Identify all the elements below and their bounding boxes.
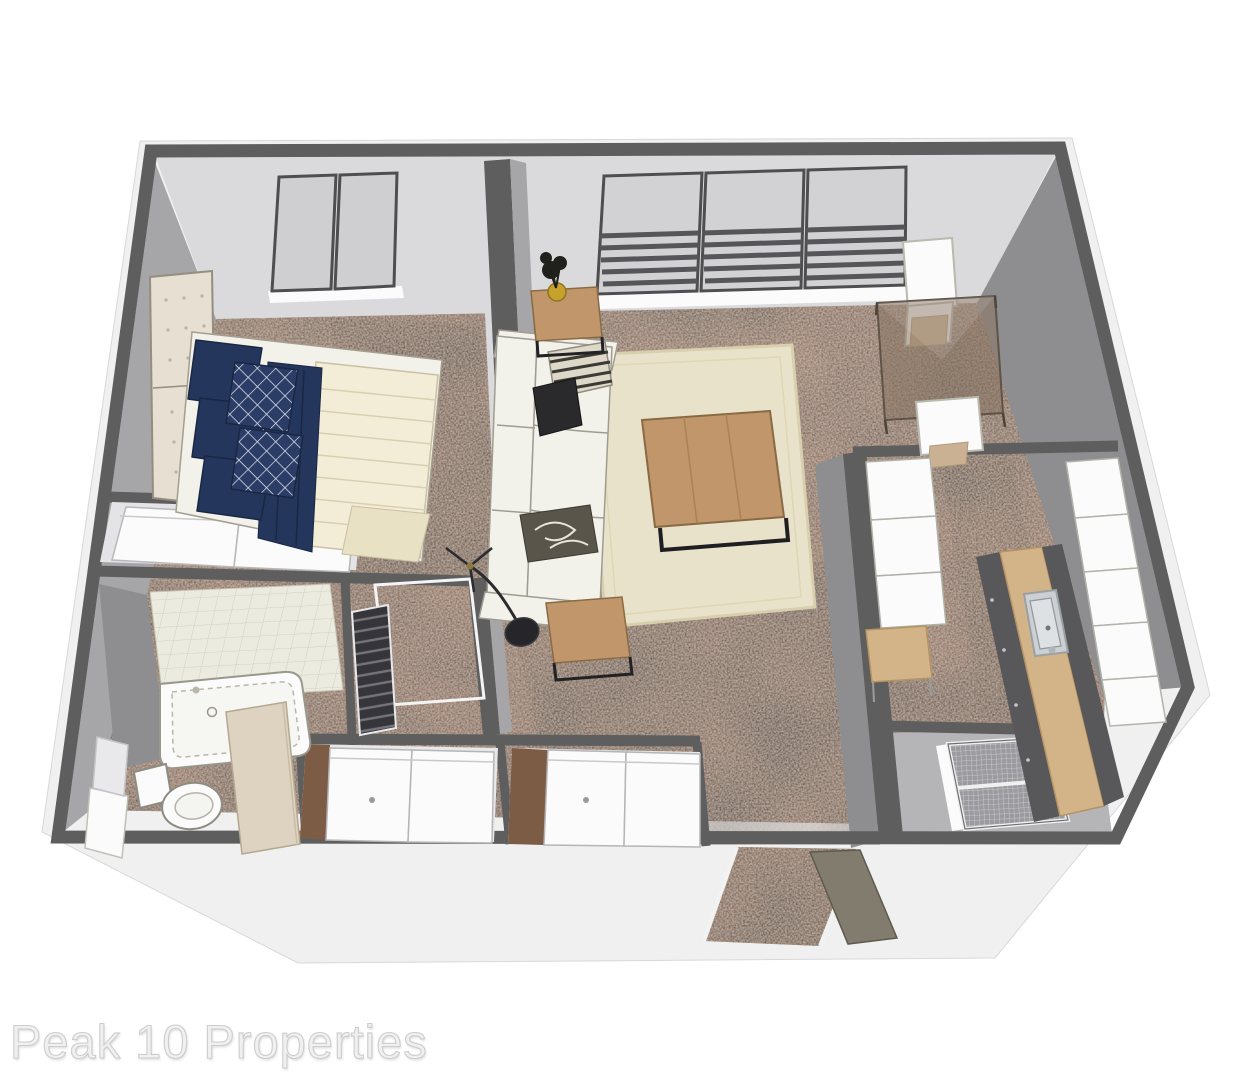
floor-plan-canvas: Peak 10 Properties [0,0,1246,1080]
swirl-pillow [520,505,598,562]
floor-plan-rendering [0,0,1246,1080]
bedroom-window [268,173,404,303]
black-pillow [533,378,582,436]
louvered-door [352,605,396,735]
living-room-window [597,167,918,309]
watermark: Peak 10 Properties [10,1016,428,1068]
